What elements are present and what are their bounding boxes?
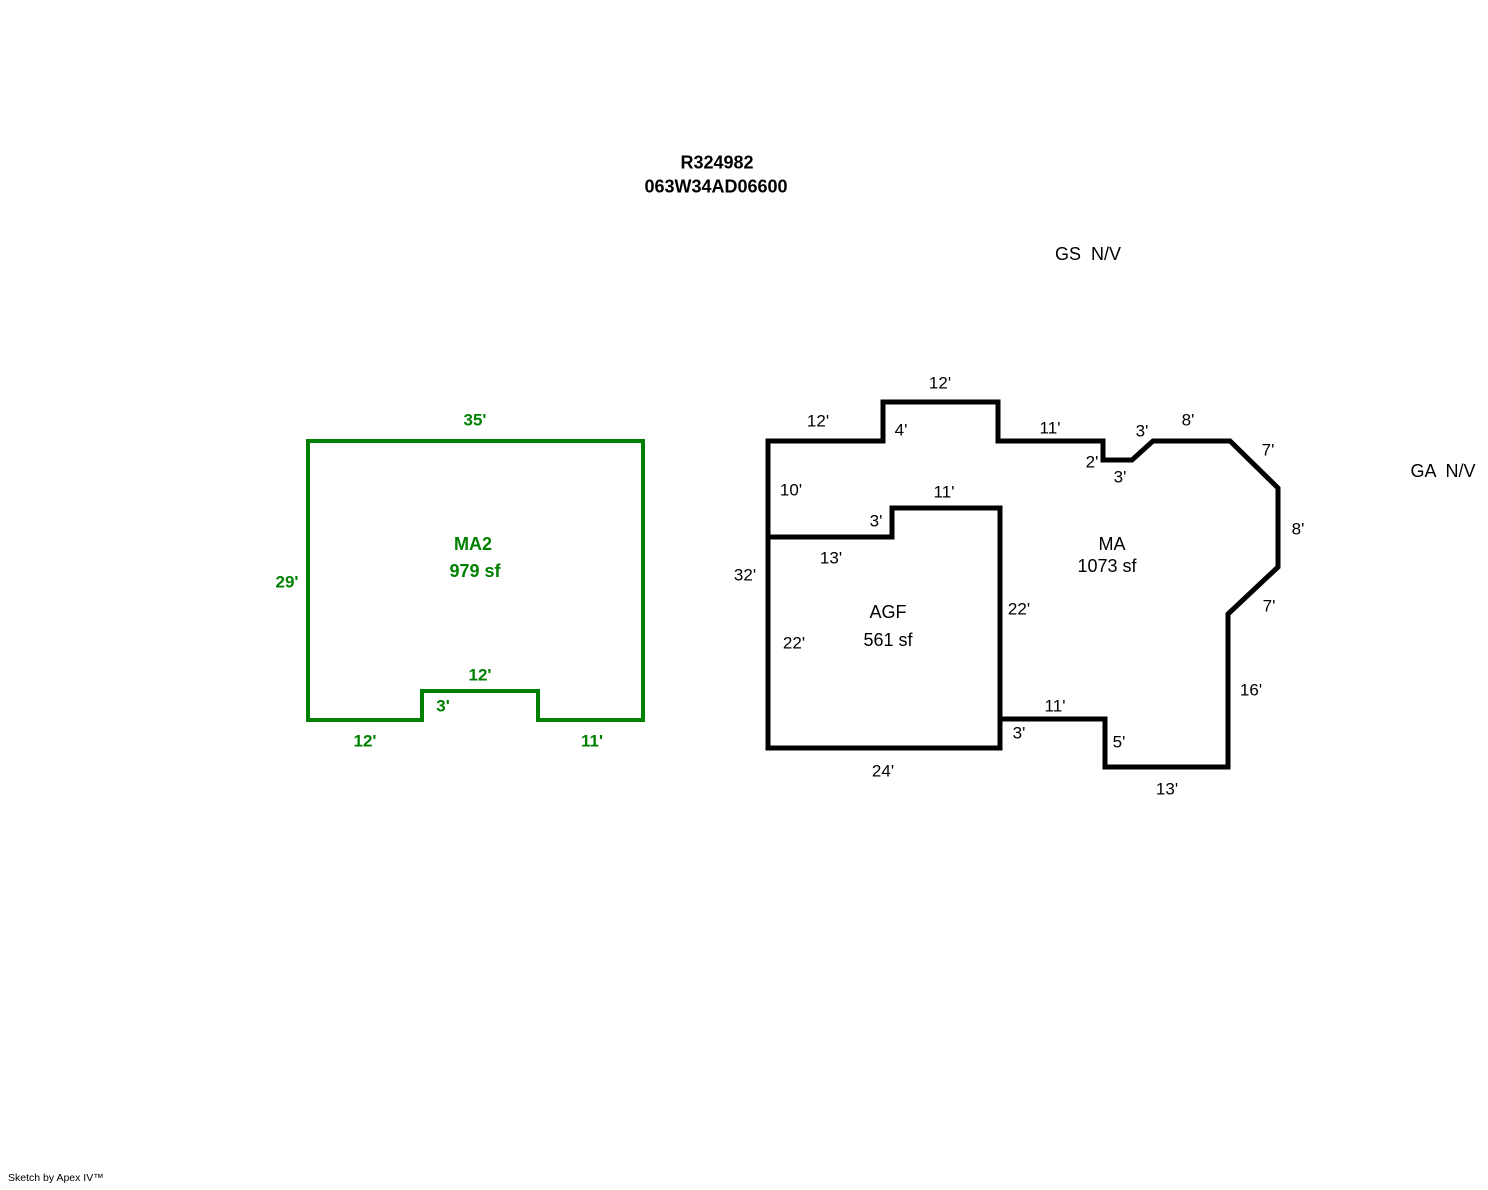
ma-dim-5-step: 5' bbox=[1113, 734, 1126, 751]
ma-dim-16-right: 16' bbox=[1240, 682, 1262, 699]
ma-dim-2-step: 2' bbox=[1086, 454, 1099, 471]
ma-dim-8-top: 8' bbox=[1182, 412, 1195, 429]
gs-novalue-label: GS N/V bbox=[1055, 245, 1121, 263]
ma-dim-3-diagonal: 3' bbox=[1136, 423, 1149, 440]
ma2-area-size: 979 sf bbox=[449, 562, 500, 580]
ma2-dim-bottom-right-11: 11' bbox=[581, 733, 603, 750]
ma-dim-7-upper-diag: 7' bbox=[1262, 442, 1275, 459]
ma-dim-3-step-bottom: 3' bbox=[1114, 469, 1127, 486]
agf-dim-3-step: 3' bbox=[870, 513, 883, 530]
ma-dim-13-bottom: 13' bbox=[1156, 781, 1178, 798]
ga-novalue-label: GA N/V bbox=[1410, 462, 1475, 480]
ma2-dim-top-35: 35' bbox=[464, 412, 487, 429]
property-sketch-page: R324982 063W34AD06600 GS N/VGA N/V35'29'… bbox=[0, 0, 1488, 1190]
apex-credit-note: Sketch by Apex IV™ bbox=[8, 1172, 104, 1184]
ma-outer-outline bbox=[768, 402, 1278, 767]
ma-dim-11-top: 11' bbox=[1040, 420, 1061, 437]
ma-dim-4-bump: 4' bbox=[895, 422, 908, 439]
ma-dim-12-upper-left: 12' bbox=[807, 413, 829, 430]
ma-dim-7-lower-diag: 7' bbox=[1263, 598, 1276, 615]
ma2-area-name: MA2 bbox=[454, 535, 492, 553]
agf-dim-11-top: 11' bbox=[934, 484, 955, 501]
ma-dim-3-bottom-step: 3' bbox=[1013, 725, 1026, 742]
ma-dim-10-left: 10' bbox=[780, 482, 802, 499]
ma-area-size: 1073 sf bbox=[1077, 557, 1136, 575]
agf-dim-32-left: 32' bbox=[734, 567, 756, 584]
agf-dim-22-left: 22' bbox=[783, 635, 805, 652]
ma-dim-12-bump-top: 12' bbox=[929, 375, 951, 392]
ma2-dim-left-29: 29' bbox=[276, 574, 299, 591]
sketch-canvas bbox=[0, 0, 1488, 1190]
ma2-dim-notch-top-12: 12' bbox=[469, 667, 492, 684]
agf-dim-22-right: 22' bbox=[1008, 601, 1030, 618]
ma2-dim-notch-3: 3' bbox=[436, 698, 450, 715]
agf-dim-13-top: 13' bbox=[820, 550, 842, 567]
ma2-dim-bottom-left-12: 12' bbox=[354, 733, 377, 750]
agf-area-name: AGF bbox=[869, 603, 906, 621]
ma-dim-8-right: 8' bbox=[1292, 521, 1305, 538]
agf-area-size: 561 sf bbox=[863, 631, 912, 649]
ma-dim-11-bottom: 11' bbox=[1045, 698, 1066, 715]
ma-area-name: MA bbox=[1099, 535, 1126, 553]
agf-dim-24-bottom: 24' bbox=[872, 763, 894, 780]
